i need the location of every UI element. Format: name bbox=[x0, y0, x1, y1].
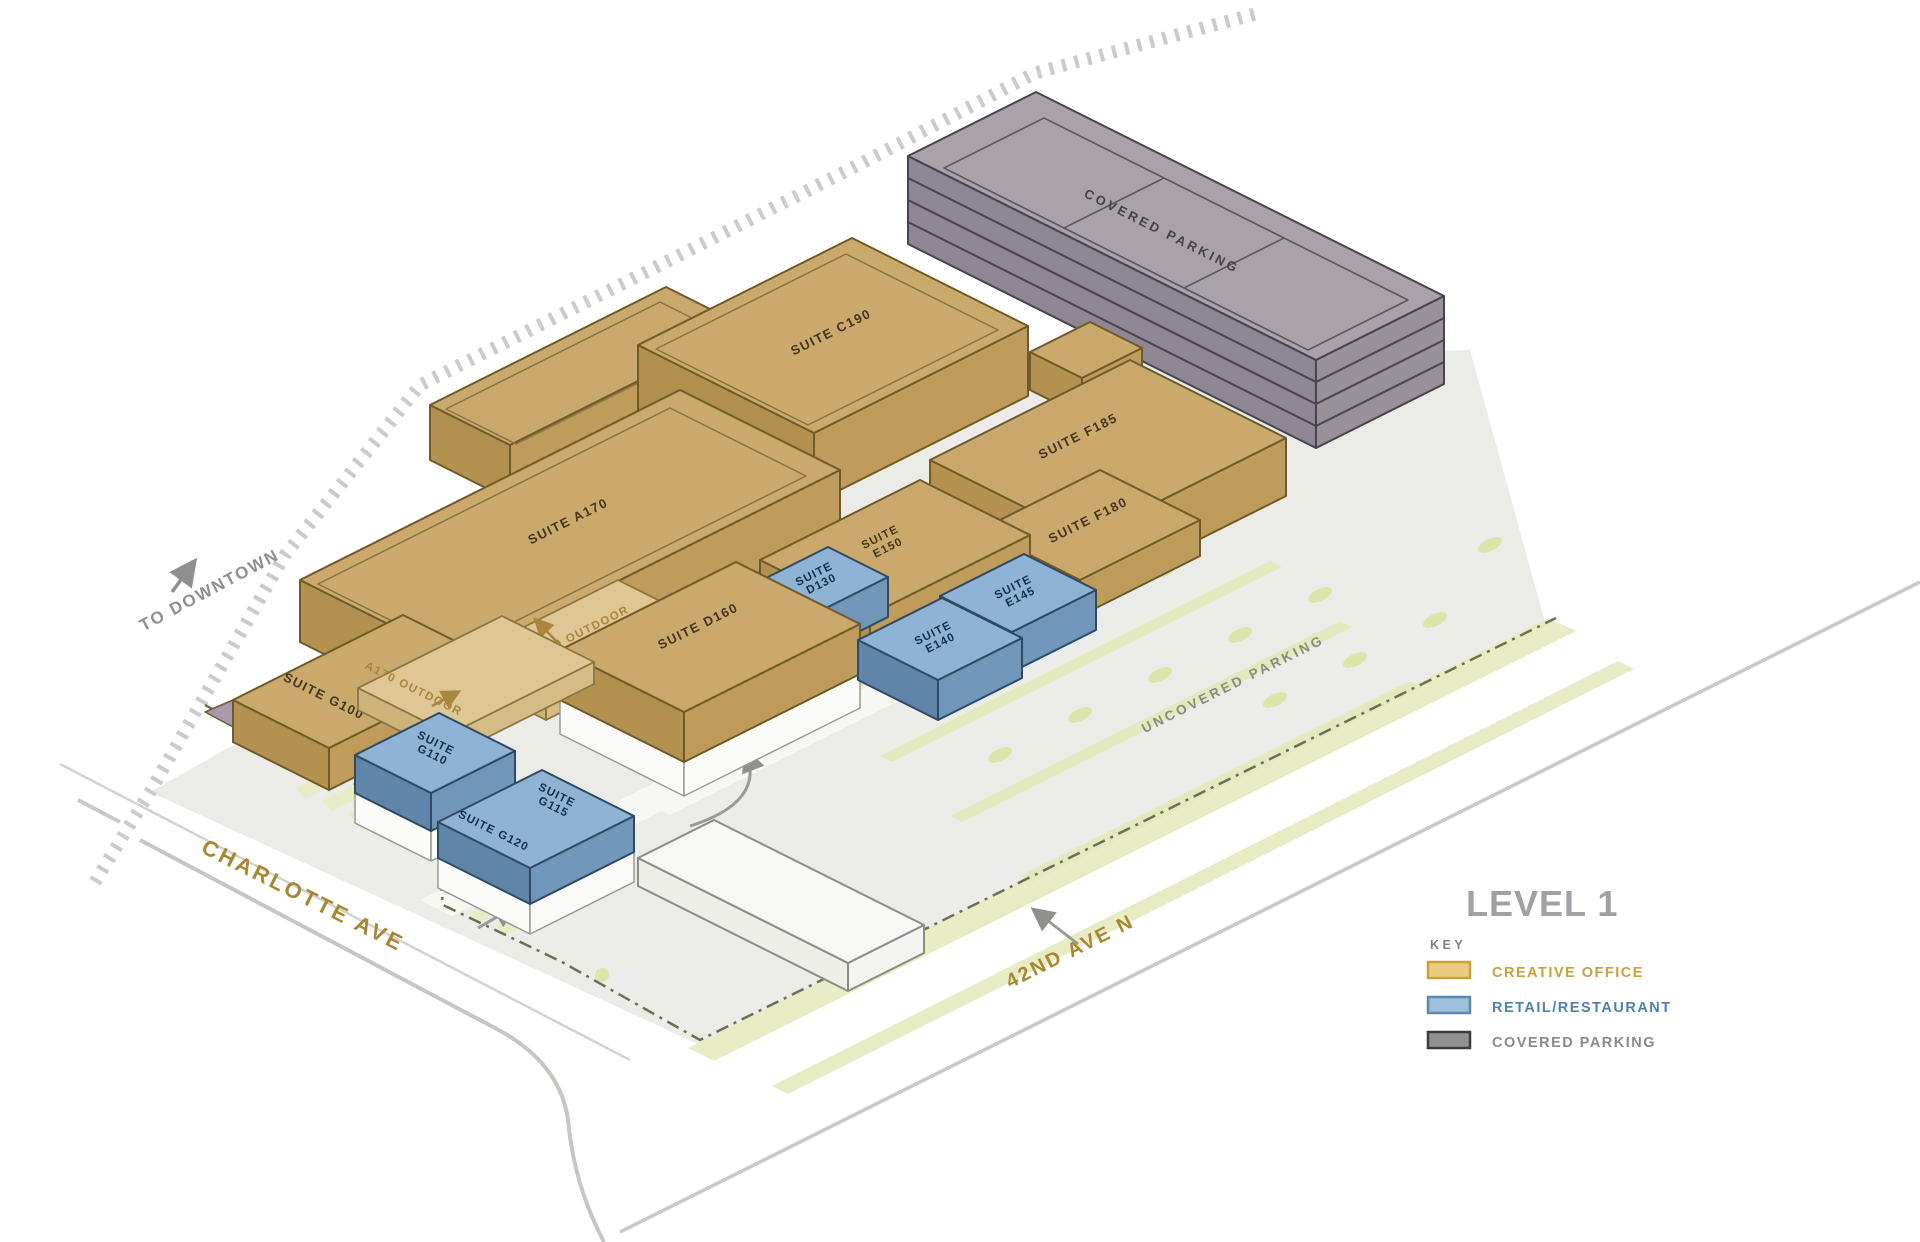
legend-label-retail-restaurant: RETAIL/RESTAURANT bbox=[1492, 1000, 1672, 1016]
legend-label-covered-parking: COVERED PARKING bbox=[1492, 1035, 1656, 1051]
legend-swatch-retail-restaurant bbox=[1428, 997, 1470, 1013]
legend: LEVEL 1 KEY CREATIVE OFFICE RETAIL/RESTA… bbox=[1428, 883, 1672, 1051]
legend-label-creative-office: CREATIVE OFFICE bbox=[1492, 965, 1644, 981]
to-downtown-arrow bbox=[172, 562, 194, 592]
legend-item-covered-parking: COVERED PARKING bbox=[1428, 1032, 1656, 1051]
legend-swatch-creative-office bbox=[1428, 962, 1470, 978]
legend-swatch-covered-parking bbox=[1428, 1032, 1470, 1048]
legend-item-creative-office: CREATIVE OFFICE bbox=[1428, 962, 1644, 981]
site-plan-level-1: COVERED PARKING SUITE C190 SUITE F185 SU… bbox=[0, 0, 1920, 1242]
site-plan-canvas: COVERED PARKING SUITE C190 SUITE F185 SU… bbox=[0, 0, 1920, 1242]
legend-key-label: KEY bbox=[1430, 938, 1466, 952]
street-curb-stub bbox=[78, 800, 120, 822]
level-title: LEVEL 1 bbox=[1466, 883, 1618, 924]
legend-item-retail-restaurant: RETAIL/RESTAURANT bbox=[1428, 997, 1672, 1016]
forty-second-ave-arrow bbox=[1034, 910, 1078, 944]
to-downtown-label: TO DOWNTOWN bbox=[136, 545, 282, 635]
forty-second-ave-label: 42ND AVE N bbox=[1003, 910, 1139, 993]
corner-wedge bbox=[205, 700, 233, 727]
